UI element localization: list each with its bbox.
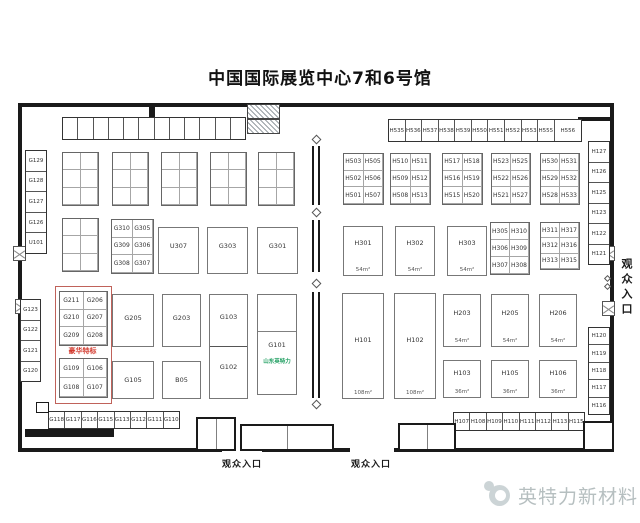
facility-room xyxy=(196,417,236,451)
south-entrance-gap-right xyxy=(350,443,394,453)
booth-empty xyxy=(277,153,295,170)
unlabeled-grid xyxy=(112,152,149,206)
booth: H107 xyxy=(454,413,470,430)
facility-room xyxy=(36,402,49,413)
wall-stub-top-right xyxy=(578,117,614,121)
south-entrance-label-left: 观众入口 xyxy=(212,457,272,470)
booth-empty xyxy=(277,188,295,205)
booth-empty xyxy=(259,188,277,205)
booth-empty xyxy=(131,170,149,187)
booth: H507 xyxy=(364,187,384,204)
divider xyxy=(216,419,217,449)
booth-empty xyxy=(211,188,229,205)
booth-empty xyxy=(131,188,149,205)
divider xyxy=(427,425,428,449)
booth: H535 xyxy=(389,120,406,141)
booth: H311 xyxy=(541,223,560,238)
booth-grid-h500-2: H510H511H509H512H508H513 xyxy=(390,153,431,205)
booth: H536 xyxy=(406,120,423,141)
booth-empty xyxy=(162,188,180,205)
booth: H111 xyxy=(520,413,536,430)
booth: G116 xyxy=(82,412,98,428)
booth: G126 xyxy=(26,213,46,234)
unlabeled-grid xyxy=(161,152,198,206)
booth-g105: G105 xyxy=(112,361,154,399)
booth-empty xyxy=(113,170,131,187)
booth-u307: U307 xyxy=(158,227,199,274)
booth: G109 xyxy=(60,359,84,378)
booth: H533 xyxy=(560,187,579,204)
facility-room xyxy=(398,423,456,451)
booth-b05: B05 xyxy=(162,361,201,399)
booth-empty xyxy=(81,153,99,170)
booth-empty xyxy=(78,118,93,139)
booth-empty xyxy=(180,153,198,170)
booth: H521 xyxy=(492,187,511,204)
booth-h303: H303 54m² xyxy=(447,226,487,276)
booth-empty xyxy=(259,170,277,187)
corridor-wall xyxy=(312,146,314,205)
booth: H517 xyxy=(443,154,463,171)
booth: G308 xyxy=(112,255,133,273)
booth-empty xyxy=(124,118,139,139)
booth-empty xyxy=(63,188,81,205)
booth: G121 xyxy=(21,341,40,362)
booth: H532 xyxy=(560,171,579,188)
booth: H519 xyxy=(463,171,483,188)
interior-wall xyxy=(25,429,114,437)
booth: H550 xyxy=(472,120,489,141)
booth-h101: H101 108m² xyxy=(342,293,384,399)
booth: G122 xyxy=(21,321,40,342)
booth-h105: H105 36m² xyxy=(491,360,529,398)
booth-empty xyxy=(170,118,185,139)
brand-watermark: 英特力新材料 xyxy=(518,482,638,509)
booth-empty xyxy=(63,236,81,253)
booth-empty xyxy=(63,118,78,139)
exhibition-floorplan: 中国国际展览中心7和6号馆 G129G128G127G126U101 G123G… xyxy=(0,0,640,523)
booth: H520 xyxy=(463,187,483,204)
east-booth-column-upper: H127H126H125H123H122H121 xyxy=(588,141,610,265)
booth-h301: H301 54m² xyxy=(343,226,383,276)
booth: G118 xyxy=(49,412,65,428)
booth: H523 xyxy=(492,154,511,171)
booth: H120 xyxy=(589,328,609,345)
booth: G108 xyxy=(60,378,84,397)
booth: G115 xyxy=(98,412,114,428)
booth: H307 xyxy=(491,257,510,274)
corridor-wall xyxy=(318,220,320,272)
booth-empty xyxy=(81,170,99,187)
divider xyxy=(258,331,296,332)
booth-h206: H206 54m² xyxy=(539,294,577,347)
booth-empty xyxy=(277,170,295,187)
page-title: 中国国际展览中心7和6号馆 xyxy=(0,64,640,89)
booth-empty xyxy=(229,170,247,187)
booth-h302: H302 54m² xyxy=(395,226,435,276)
booth: G107 xyxy=(84,378,108,397)
booth: G127 xyxy=(26,192,46,213)
booth: H512 xyxy=(411,171,431,188)
booth: H305 xyxy=(491,223,510,240)
booth-empty xyxy=(211,153,229,170)
left-hall-north-strip xyxy=(62,117,246,140)
booth-empty xyxy=(113,188,131,205)
booth-empty xyxy=(216,118,231,139)
booth: H526 xyxy=(511,171,530,188)
booth-g205: G205 xyxy=(112,294,154,347)
booth-h203: H203 54m² xyxy=(443,294,481,347)
booth: H309 xyxy=(510,240,529,257)
booth-h102: H102 108m² xyxy=(394,293,436,399)
booth-empty xyxy=(81,254,99,271)
booth: H121 xyxy=(589,245,609,265)
booth: H522 xyxy=(492,171,511,188)
booth: G128 xyxy=(26,172,46,193)
booth: G211 xyxy=(60,292,84,310)
booth-empty xyxy=(155,118,170,139)
booth: H555 xyxy=(538,120,555,141)
corridor-wall xyxy=(312,292,314,398)
booth: H110 xyxy=(503,413,519,430)
booth-empty xyxy=(81,188,99,205)
booth: H312 xyxy=(541,238,560,253)
booth-empty xyxy=(81,236,99,253)
booth: H123 xyxy=(589,204,609,225)
booth-grid-h300-2: H311H317H312H316H313H315 xyxy=(540,222,580,270)
booth: H503 xyxy=(344,154,364,171)
booth: G111 xyxy=(147,412,163,428)
booth: H125 xyxy=(589,183,609,204)
booth-grid-h500-1: H503H505H502H506H501H507 xyxy=(343,153,384,205)
booth: H506 xyxy=(364,171,384,188)
booth: G120 xyxy=(21,362,40,382)
unlabeled-grid xyxy=(258,152,295,206)
booth: H122 xyxy=(589,224,609,245)
booth: G306 xyxy=(133,238,154,256)
booth: G112 xyxy=(131,412,147,428)
west-booth-column-upper: G129G128G127G126U101 xyxy=(25,150,47,254)
booth: G207 xyxy=(84,310,108,328)
booth: H501 xyxy=(344,187,364,204)
divider xyxy=(287,426,288,449)
divider xyxy=(210,346,247,347)
booth: H551 xyxy=(488,120,505,141)
booth-empty xyxy=(231,118,245,139)
booth: G129 xyxy=(26,151,46,172)
booth: G106 xyxy=(84,359,108,378)
booth: G209 xyxy=(60,327,84,345)
booth: H511 xyxy=(411,154,431,171)
booth-empty xyxy=(81,219,99,236)
booth: H502 xyxy=(344,171,364,188)
booth-grid-g100: G109G106G108G107 xyxy=(59,358,108,398)
unlabeled-grid xyxy=(62,152,99,206)
booth: H509 xyxy=(391,171,411,188)
booth: H317 xyxy=(560,223,579,238)
west-booth-column-lower: G123G122G121G120 xyxy=(20,299,41,382)
booth-g103-g102: G103 G102 xyxy=(209,294,248,399)
booth: H552 xyxy=(505,120,522,141)
booth: G206 xyxy=(84,292,108,310)
booth-empty xyxy=(229,153,247,170)
booth: G305 xyxy=(133,220,154,238)
booth: H529 xyxy=(541,171,560,188)
stairs-hatch-icon xyxy=(247,104,280,119)
booth: G123 xyxy=(21,300,40,321)
right-hall-south-strip: H107H108H109H110H111H112H113H115 xyxy=(453,412,585,431)
booth: H510 xyxy=(391,154,411,171)
booth: H127 xyxy=(589,142,609,163)
booth-empty xyxy=(200,118,215,139)
booth: U101 xyxy=(26,233,46,253)
booth: H109 xyxy=(487,413,503,430)
booth: H115 xyxy=(569,413,584,430)
booth: H116 xyxy=(589,398,609,414)
booth-g301: G301 xyxy=(257,227,298,274)
booth-empty xyxy=(131,153,149,170)
booth-empty xyxy=(180,188,198,205)
unlabeled-grid xyxy=(210,152,247,206)
corridor-wall xyxy=(318,146,320,205)
booth: H537 xyxy=(422,120,439,141)
booth: H538 xyxy=(439,120,456,141)
booth: G210 xyxy=(60,310,84,328)
stairs-hatch-icon xyxy=(247,119,280,134)
booth-grid-g200: G211G206G210G207G209G208 xyxy=(59,291,108,346)
booth: H525 xyxy=(511,154,530,171)
booth: H315 xyxy=(560,254,579,269)
booth-empty xyxy=(162,170,180,187)
booth: H118 xyxy=(589,363,609,380)
left-hall-south-strip: G118G117G116G115G113G112G111G110 xyxy=(48,411,180,429)
corridor-wall xyxy=(312,220,314,272)
booth-h106: H106 36m² xyxy=(539,360,577,398)
booth: H528 xyxy=(541,187,560,204)
booth-g203: G203 xyxy=(162,294,201,347)
booth: H530 xyxy=(541,154,560,171)
booth: H308 xyxy=(510,257,529,274)
booth-grid-g300: G310G305G309G306G308G307 xyxy=(111,219,154,274)
booth-empty xyxy=(162,153,180,170)
booth-empty xyxy=(63,170,81,187)
booth: G208 xyxy=(84,327,108,345)
booth-empty xyxy=(259,153,277,170)
south-entrance-label-right: 观众入口 xyxy=(341,457,401,470)
booth: H527 xyxy=(511,187,530,204)
booth: H515 xyxy=(443,187,463,204)
deluxe-label: 豪华特标 xyxy=(57,346,108,356)
booth: H119 xyxy=(589,345,609,362)
booth: G113 xyxy=(115,412,131,428)
booth-h103: H103 36m² xyxy=(443,360,481,398)
booth: H316 xyxy=(560,238,579,253)
booth-empty xyxy=(229,188,247,205)
booth: H556 xyxy=(555,120,581,141)
booth: H306 xyxy=(491,240,510,257)
booth: H112 xyxy=(536,413,552,430)
booth: H505 xyxy=(364,154,384,171)
booth: H539 xyxy=(455,120,472,141)
booth-grid-h300-1: H305H310H306H309H307H308 xyxy=(490,222,530,275)
booth: H513 xyxy=(411,187,431,204)
booth: G117 xyxy=(65,412,81,428)
booth: G309 xyxy=(112,238,133,256)
booth-empty xyxy=(185,118,200,139)
booth-grid-h500-4: H523H525H522H526H521H527 xyxy=(491,153,531,205)
corridor-wall xyxy=(318,292,320,398)
booth: H516 xyxy=(443,171,463,188)
booth: H108 xyxy=(470,413,486,430)
door-icon xyxy=(602,301,615,316)
facility-room xyxy=(583,421,614,451)
booth: H553 xyxy=(522,120,539,141)
facility-room xyxy=(240,424,334,451)
booth: H508 xyxy=(391,187,411,204)
right-hall-north-strip: H535H536H537H538H539H550H551H552H553H555… xyxy=(388,119,582,142)
unlabeled-grid xyxy=(62,218,99,272)
booth: H531 xyxy=(560,154,579,171)
booth: G110 xyxy=(164,412,179,428)
booth-grid-h500-5: H530H531H529H532H528H533 xyxy=(540,153,580,205)
brand-logo-icon xyxy=(495,490,506,501)
booth: H113 xyxy=(552,413,568,430)
booth: H126 xyxy=(589,163,609,184)
booth-empty xyxy=(211,170,229,187)
booth: G307 xyxy=(133,255,154,273)
booth-h205: H205 54m² xyxy=(491,294,529,347)
east-entrance-label: 观众入口 xyxy=(618,258,634,318)
booth-empty xyxy=(109,118,124,139)
booth: H310 xyxy=(510,223,529,240)
booth-empty xyxy=(139,118,154,139)
booth-grid-h500-3: H517H518H516H519H515H520 xyxy=(442,153,483,205)
booth: H313 xyxy=(541,254,560,269)
booth-empty xyxy=(180,170,198,187)
booth-empty xyxy=(63,219,81,236)
booth: G310 xyxy=(112,220,133,238)
booth-empty xyxy=(94,118,109,139)
booth: H117 xyxy=(589,380,609,397)
east-booth-column-lower: H120H119H118H117H116 xyxy=(588,327,610,415)
booth-empty xyxy=(63,153,81,170)
booth-empty xyxy=(113,153,131,170)
exhibitor-name: 山东英特力 xyxy=(258,357,296,365)
booth-empty xyxy=(63,254,81,271)
booth: H518 xyxy=(463,154,483,171)
booth-g101: G101 山东英特力 xyxy=(257,294,297,395)
booth-g303: G303 xyxy=(207,227,248,274)
